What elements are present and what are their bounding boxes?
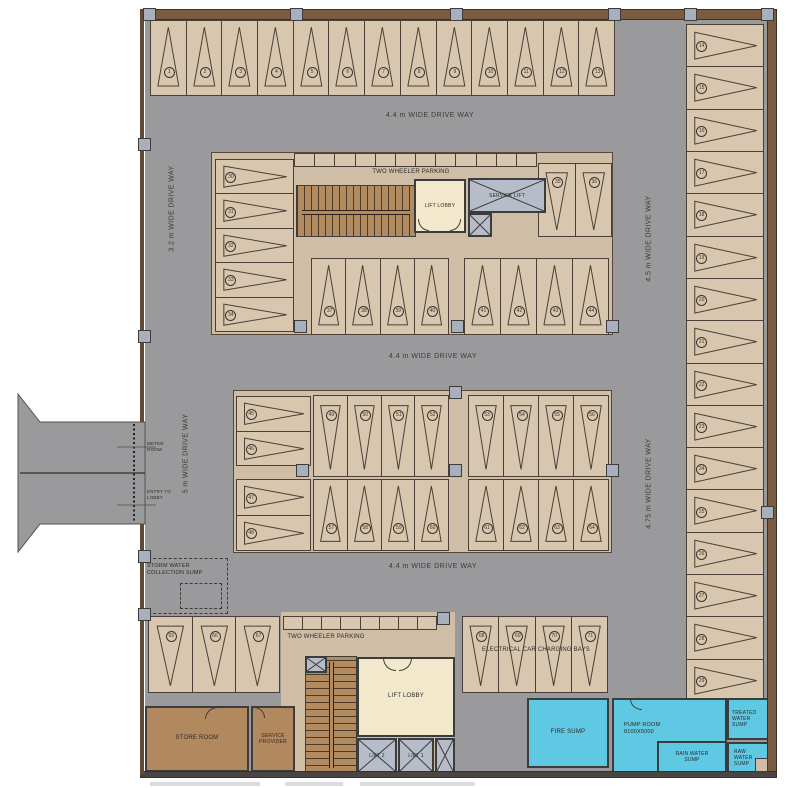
- treated-water-sump: TREATED WATER SUMP: [727, 698, 769, 740]
- service-shaft: [468, 213, 492, 237]
- stall-number: 36: [589, 177, 600, 188]
- lift-lobby-lower: LIFT LOBBY: [357, 657, 455, 737]
- parking-stall: 23: [686, 405, 764, 448]
- two-wheeler-cell: [436, 154, 456, 166]
- stall-number: 43: [550, 306, 561, 317]
- parking-stall: 56: [573, 395, 609, 477]
- stall-number: 25: [696, 507, 707, 518]
- cropped-text-remnant: [285, 782, 343, 786]
- stair-rail: [302, 210, 411, 215]
- label-driveway-right-upper: 4.5 m WIDE DRIVE WAY: [646, 184, 653, 294]
- label-driveway-bottom: 4.4 m WIDE DRIVE WAY: [333, 563, 533, 570]
- lift-cross-icon: [307, 658, 325, 671]
- stall-column-upper-left: 3031323334: [215, 159, 294, 332]
- structural-column: [606, 464, 619, 477]
- parking-stall: 65: [148, 616, 193, 693]
- label-entry-lobby: ENTRY TO LOBBY: [147, 489, 175, 501]
- stall-number: 55: [552, 410, 563, 421]
- stall-number: 37: [324, 306, 335, 317]
- parking-stall: 7: [364, 20, 401, 96]
- structural-column: [608, 8, 621, 21]
- parking-stall: 70: [535, 616, 572, 693]
- store-room: STORE ROOM: [145, 706, 249, 772]
- parking-stall: 40: [414, 258, 449, 335]
- parking-stall: 18: [686, 193, 764, 236]
- raw-sump-notch: [755, 758, 768, 772]
- wall-bottom: [140, 771, 777, 778]
- middle-parking-block: 4546 4748 49505152 53545556 57585960 616…: [233, 390, 612, 553]
- parking-stall: 11: [507, 20, 544, 96]
- stall-number: 39: [393, 306, 404, 317]
- parking-stall: 28: [686, 616, 764, 659]
- lift-1: LIFT 1: [398, 738, 434, 773]
- parking-stall: 37: [311, 258, 346, 335]
- parking-stall: 33: [215, 262, 294, 297]
- stall-row-upper-bottom-a: 37383940: [311, 258, 449, 335]
- stall-row-island-top-a: 49505152: [313, 395, 449, 477]
- two-wheeler-cell: [416, 154, 436, 166]
- parking-stall: 13: [578, 20, 615, 96]
- structural-column: [138, 330, 151, 343]
- structural-column: [451, 320, 464, 333]
- stall-row-island-bottom-b: 61626364: [468, 479, 609, 551]
- structural-column: [606, 320, 619, 333]
- parking-stall: 60: [414, 479, 449, 551]
- label-lift-lobby-upper: LIFT LOBBY: [425, 203, 455, 209]
- two-wheeler-cell: [396, 154, 416, 166]
- label-meter-room: METER ROOM: [147, 441, 173, 453]
- stall-number: 31: [225, 207, 236, 218]
- stall-number: 8: [414, 67, 425, 78]
- parking-stall: 58: [347, 479, 382, 551]
- structural-column: [296, 464, 309, 477]
- parking-stall: 4: [257, 20, 294, 96]
- lift-shaft-corner: [435, 738, 455, 773]
- two-wheeler-cell: [284, 617, 303, 629]
- label-rain-water-sump: RAIN WATER SUMP: [670, 751, 714, 763]
- stall-number: 53: [482, 410, 493, 421]
- stall-number: 70: [549, 631, 560, 642]
- stall-number: 45: [246, 409, 257, 420]
- stall-number: 41: [478, 306, 489, 317]
- stall-number: 22: [696, 380, 707, 391]
- parking-stall: 45: [236, 396, 311, 432]
- stall-number: 16: [696, 126, 707, 137]
- two-wheeler-cell: [322, 617, 341, 629]
- stall-number: 13: [592, 67, 603, 78]
- parking-stall: 30: [215, 159, 294, 194]
- parking-stall: 2: [186, 20, 223, 96]
- two-wheeler-cell: [356, 154, 376, 166]
- stall-number: 61: [482, 523, 493, 534]
- structural-column: [138, 608, 151, 621]
- structural-column: [294, 320, 307, 333]
- structural-column: [138, 550, 151, 563]
- stair-shaft: [305, 656, 327, 673]
- stall-number: 10: [485, 67, 496, 78]
- parking-stall: 29: [686, 659, 764, 702]
- label-service-lift: SERVICE LIFT: [489, 193, 525, 199]
- lift-2: LIFT 2: [357, 738, 397, 773]
- stall-row-bottom-left: 656667: [148, 616, 280, 693]
- lift-cross-icon: [470, 215, 490, 235]
- parking-stall: 62: [503, 479, 539, 551]
- parking-stall: 34: [215, 297, 294, 332]
- label-store-room: STORE ROOM: [176, 735, 219, 742]
- structural-column: [143, 8, 156, 21]
- label-storm-sump: STORM WATER COLLECTION SUMP: [147, 563, 207, 576]
- parking-stall: 16: [686, 109, 764, 152]
- parking-stall: 49: [313, 395, 348, 477]
- parking-stall: 22: [686, 363, 764, 406]
- stall-number: 40: [427, 306, 438, 317]
- label-driveway-left-lower: 5 m WIDE DRIVE WAY: [183, 404, 190, 504]
- storm-sump-pit: [180, 583, 222, 609]
- two-wheeler-cell: [517, 154, 536, 166]
- parking-stall: 46: [236, 431, 311, 467]
- label-two-wheeler-upper: TWO WHEELER PARKING: [301, 169, 521, 176]
- parking-stall: 9: [436, 20, 473, 96]
- stall-number: 28: [696, 634, 707, 645]
- stall-column-right: 14151617181920212223242526272829: [686, 24, 764, 702]
- parking-stall: 43: [536, 258, 573, 335]
- two-wheeler-strip-lower: [283, 616, 437, 630]
- label-treated-water-sump: TREATED WATER SUMP: [732, 710, 764, 728]
- two-wheeler-cell: [315, 154, 335, 166]
- stall-row-island-top-b: 53545556: [468, 395, 609, 477]
- stall-number: 50: [360, 410, 371, 421]
- parking-stall: 48: [236, 515, 311, 552]
- parking-stall: 38: [345, 258, 380, 335]
- label-driveway-top: 4.4 m WIDE DRIVE WAY: [330, 112, 530, 119]
- label-pump-room: PUMP ROOM: [624, 722, 660, 729]
- parking-stall: 44: [572, 258, 609, 335]
- label-fire-sump: FIRE SUMP: [551, 729, 585, 736]
- wall-left-upper: [140, 9, 144, 422]
- parking-stall: 54: [503, 395, 539, 477]
- parking-stall: 26: [686, 532, 764, 575]
- parking-stall: 5: [293, 20, 330, 96]
- parking-stall: 15: [686, 66, 764, 109]
- structural-column: [761, 506, 774, 519]
- two-wheeler-cell: [418, 617, 436, 629]
- label-lift-2: LIFT 2: [369, 753, 385, 759]
- stall-number: 71: [585, 631, 596, 642]
- stall-number: 47: [246, 493, 257, 504]
- label-driveway-left-upper: 3.2 m WIDE DRIVE WAY: [169, 159, 176, 259]
- parking-stall: 55: [538, 395, 574, 477]
- two-wheeler-cell: [380, 617, 399, 629]
- two-wheeler-cell: [335, 154, 355, 166]
- parking-stall: 20: [686, 278, 764, 321]
- label-lift-1: LIFT 1: [408, 753, 424, 759]
- wall-right: [767, 9, 777, 775]
- rain-water-sump: RAIN WATER SUMP: [657, 741, 727, 773]
- parking-stall: 10: [471, 20, 508, 96]
- parking-stall: 24: [686, 447, 764, 490]
- parking-stall: 69: [498, 616, 535, 693]
- stall-number: 68: [476, 631, 487, 642]
- stall-row-upper-right: 3536: [538, 163, 612, 237]
- two-wheeler-cell: [295, 154, 315, 166]
- parking-stall: 61: [468, 479, 504, 551]
- stall-number: 54: [517, 410, 528, 421]
- parking-stall: 41: [464, 258, 501, 335]
- stall-number: 19: [696, 253, 707, 264]
- stall-number: 48: [246, 528, 257, 539]
- parking-stall: 32: [215, 228, 294, 263]
- structural-column: [449, 464, 462, 477]
- label-lift-lobby-lower: LIFT LOBBY: [388, 693, 424, 700]
- stall-number: 2: [200, 67, 211, 78]
- label-driveway-mid: 4.4 m WIDE DRIVE WAY: [333, 353, 533, 360]
- structural-column: [138, 138, 151, 151]
- parking-stall: 27: [686, 574, 764, 617]
- stall-number: 4: [271, 67, 282, 78]
- stall-row-top: 12345678910111213: [150, 20, 615, 96]
- two-wheeler-cell: [361, 617, 380, 629]
- parking-stall: 53: [468, 395, 504, 477]
- stall-row-island-bottom-a: 57585960: [313, 479, 449, 551]
- fire-sump: FIRE SUMP: [527, 698, 609, 768]
- parking-stall: 36: [575, 163, 613, 237]
- parking-stall: 64: [573, 479, 609, 551]
- stall-number: 5: [307, 67, 318, 78]
- stall-number: 42: [514, 306, 525, 317]
- cropped-text-remnant: [360, 782, 475, 786]
- label-pump-room-size: 8100X5000: [624, 729, 660, 736]
- label-two-wheeler-lower: TWO WHEELER PARKING: [246, 634, 406, 641]
- parking-stall: 50: [347, 395, 382, 477]
- parking-stall: 59: [381, 479, 416, 551]
- stall-number: 7: [378, 67, 389, 78]
- basement-parking-floor-plan: 12345678910111213 1415161718192021222324…: [0, 0, 788, 788]
- stall-number: 38: [358, 306, 369, 317]
- parking-stall: 42: [500, 258, 537, 335]
- label-driveway-right-lower: 4.75 m WIDE DRIVE WAY: [646, 429, 653, 539]
- entry-ramp: [0, 380, 160, 565]
- parking-stall: 6: [328, 20, 365, 96]
- parking-stall: 3: [221, 20, 258, 96]
- stall-column-island-left-top: 4546: [236, 396, 311, 466]
- parking-stall: 67: [235, 616, 280, 693]
- parking-stall: 68: [462, 616, 499, 693]
- parking-stall: 71: [571, 616, 608, 693]
- structural-column: [684, 8, 697, 21]
- stall-number: 11: [521, 67, 532, 78]
- stall-number: 62: [517, 523, 528, 534]
- stall-number: 1: [164, 67, 175, 78]
- label-service-provider: SERVICE PROVIDER: [256, 733, 290, 745]
- stall-number: 26: [696, 549, 707, 560]
- stall-number: 44: [586, 306, 597, 317]
- stall-number: 29: [696, 676, 707, 687]
- structural-column: [437, 612, 450, 625]
- parking-stall: 12: [543, 20, 580, 96]
- storm-water-sump-area: STORM WATER COLLECTION SUMP: [143, 558, 228, 614]
- two-wheeler-cell: [497, 154, 517, 166]
- staircase-upper: [296, 185, 416, 237]
- parking-stall: 21: [686, 320, 764, 363]
- structural-column: [761, 8, 774, 21]
- lift-cross-icon: [437, 740, 453, 771]
- parking-stall: 57: [313, 479, 348, 551]
- two-wheeler-cell: [456, 154, 476, 166]
- staircase-lower: [305, 656, 357, 774]
- upper-parking-block: 3031323334 TWO WHEELER PARKING LIFT LOBB…: [211, 152, 613, 335]
- stall-row-upper-bottom-b: 41424344: [464, 258, 609, 335]
- stall-number: 46: [246, 444, 257, 455]
- structural-column: [449, 386, 462, 399]
- two-wheeler-cell: [376, 154, 396, 166]
- stall-number: 64: [587, 523, 598, 534]
- parking-stall: 1: [150, 20, 187, 96]
- two-wheeler-cell: [341, 617, 360, 629]
- parking-stall: 39: [380, 258, 415, 335]
- service-lift: SERVICE LIFT: [468, 178, 546, 213]
- label-ev-bays: ELECTRICAL CAR CHARGING BAYS: [463, 647, 609, 654]
- parking-stall: 14: [686, 24, 764, 67]
- stair-rail: [329, 662, 334, 769]
- stall-number: 56: [587, 410, 598, 421]
- parking-stall: 51: [381, 395, 416, 477]
- parking-stall: 19: [686, 236, 764, 279]
- two-wheeler-cell: [399, 617, 418, 629]
- parking-stall: 25: [686, 489, 764, 532]
- structural-column: [450, 8, 463, 21]
- stall-number: 66: [210, 631, 221, 642]
- stall-number: 63: [552, 523, 563, 534]
- stall-row-ev-bays: 68697071: [462, 616, 608, 693]
- parking-stall: 17: [686, 151, 764, 194]
- structural-column: [290, 8, 303, 21]
- stall-number: 65: [166, 631, 177, 642]
- parking-stall: 52: [414, 395, 449, 477]
- parking-stall: 66: [192, 616, 237, 693]
- parking-stall: 31: [215, 193, 294, 228]
- parking-stall: 63: [538, 479, 574, 551]
- stall-column-island-left-bottom: 4748: [236, 479, 311, 551]
- stall-number: 69: [512, 631, 523, 642]
- parking-stall: 8: [400, 20, 437, 96]
- parking-stall: 47: [236, 479, 311, 516]
- two-wheeler-cell: [303, 617, 322, 629]
- two-wheeler-strip-upper: [294, 153, 537, 167]
- two-wheeler-cell: [477, 154, 497, 166]
- stall-number: 58: [360, 523, 371, 534]
- cropped-text-remnant: [150, 782, 260, 786]
